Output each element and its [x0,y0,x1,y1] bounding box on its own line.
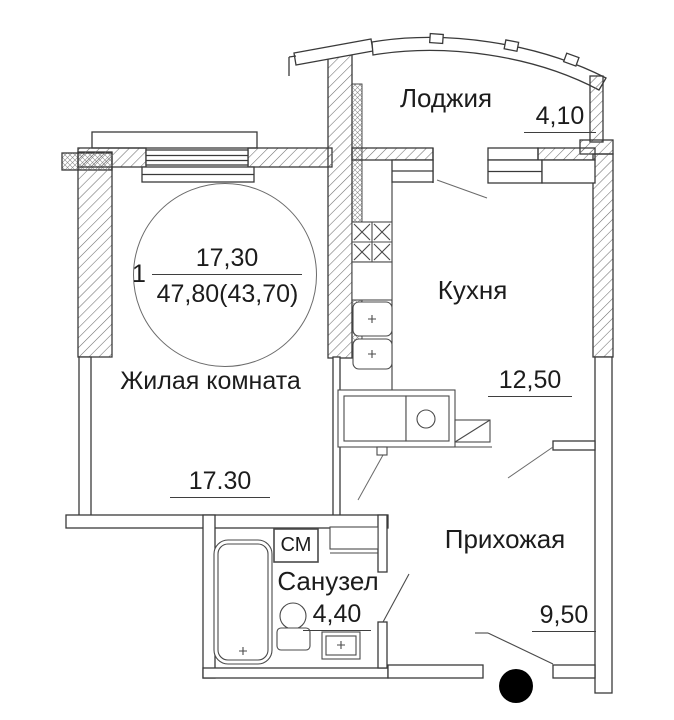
unit-info-circle [133,183,317,367]
wall-segment [328,55,352,358]
door-swing-icon [488,633,553,664]
leader-line [508,447,553,478]
unit-total-area: 47,80(43,70) [140,280,315,309]
dimension-hallway: 9,50 [532,601,596,632]
wall-segment [553,441,595,450]
window-icon [392,160,595,183]
washing-machine-label: СМ [274,534,318,557]
wall-segment [78,152,112,357]
wall-segment [595,357,612,693]
wall-segment [203,515,215,678]
kitchen-cabinet-icon [352,262,392,300]
kitchen-unit-icon [353,302,392,336]
wall-segment [538,148,595,160]
wall-segment [378,622,387,668]
floor-plan: 1 17,30 47,80(43,70) Лоджия 4,10 Кухня 1… [0,0,674,720]
room-label-kitchen: Кухня [405,276,540,305]
window-icon [142,150,254,182]
wall-segment [248,148,332,167]
wall-segment [488,148,538,160]
wall-segment [593,154,613,357]
washbasin-icon [322,632,360,659]
sink-icon [338,390,455,455]
window-mullion [430,34,444,44]
wall-segment [388,665,483,678]
stove-icon [352,222,392,262]
wall-segment [352,148,433,160]
wall-segment [78,148,146,167]
window-mullion [504,40,518,51]
wall-segment [553,665,595,678]
entry-dot-icon [499,669,533,703]
wall-segment [378,515,387,572]
dimension-loggia: 4,10 [524,102,596,133]
leader-line [358,455,383,500]
dimension-bathroom: 4,40 [303,600,371,631]
room-label-bathroom: Санузел [260,567,396,596]
wall-segment [203,668,388,678]
bathtub-icon [214,540,272,664]
room-label-living-room: Жилая комната [88,368,333,396]
room-label-loggia: Лоджия [376,84,516,113]
dish-rack-icon [455,420,492,447]
unit-living-area: 17,30 [152,244,302,275]
room-label-hallway: Прихожая [415,525,595,554]
kitchen-unit-icon [353,339,392,369]
wall-segment [66,515,388,528]
dimension-living-room: 17.30 [170,467,270,498]
shelf-icon [330,527,378,553]
leader-line [437,180,487,198]
dimension-kitchen: 12,50 [488,366,572,397]
wall-segment [92,132,257,148]
